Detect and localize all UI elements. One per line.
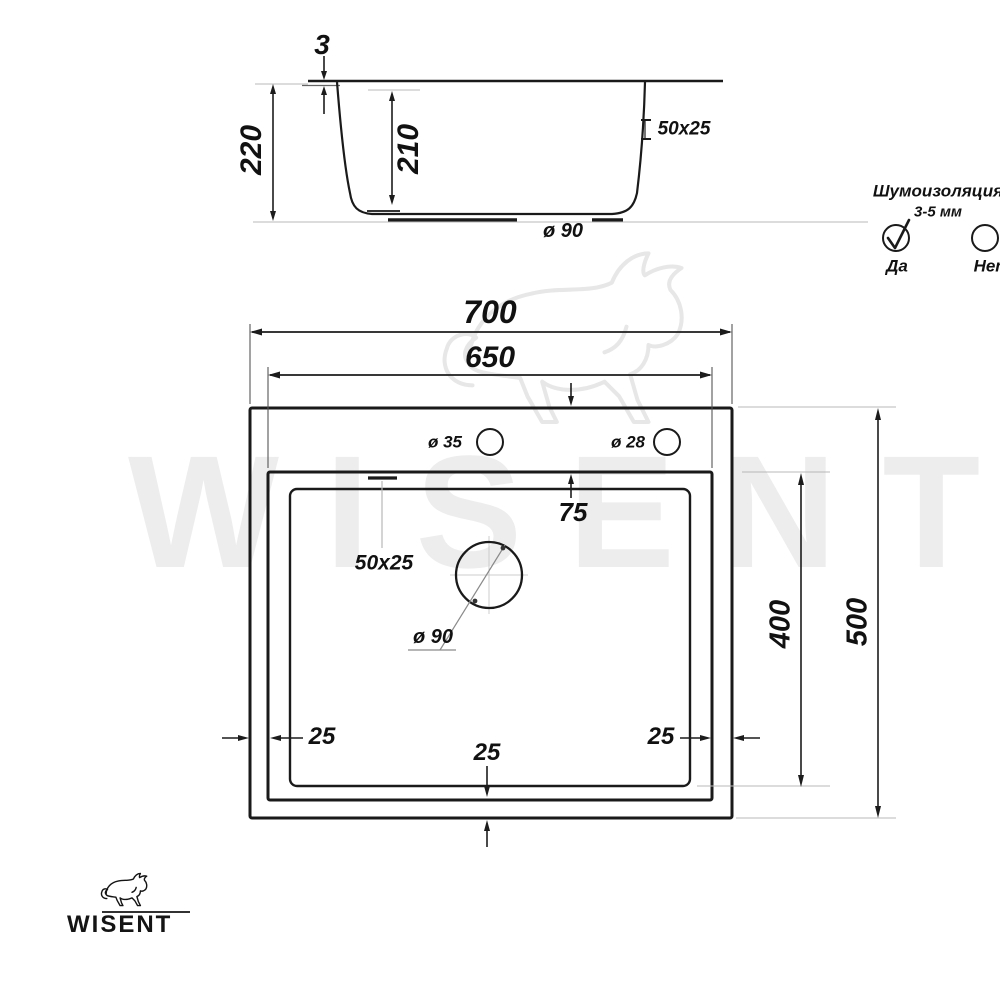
hole-label-28: ø 28 [611,434,645,451]
overflow-label-top: 50x25 [355,553,413,574]
dim-label-650: 650 [465,343,515,373]
dim-label-overflow-side: 50x25 [658,120,711,139]
dim-label-220: 220 [237,125,267,175]
dim-label-75: 75 [559,499,588,525]
noise-insulation-subtitle: 3-5 мм [914,205,962,220]
noise-insulation-title: Шумоизоляция [873,183,1000,200]
dim-label-3: 3 [314,31,330,59]
faucet-hole-28 [654,429,680,455]
dim-label-210: 210 [394,124,424,174]
sink-technical-drawing-page: WISENT [0,0,1000,1000]
noise-insulation-options [883,220,998,251]
dim-label-25-left: 25 [309,725,336,749]
logo-bison-icon [96,872,168,914]
dim-label-400: 400 [767,600,796,648]
dim-650 [268,367,712,468]
drawing-linework [0,0,1000,1000]
dim-label-500: 500 [844,598,873,646]
checkmark-icon [888,220,909,248]
dim-label-25-right: 25 [648,725,675,749]
no-label: Нет [974,258,1000,275]
no-option-circle [972,225,998,251]
side-view-extension-lines [253,84,868,222]
dim-label-25-bottom: 25 [474,741,501,765]
drain-label-top: ø 90 [413,627,453,647]
dim-label-700: 700 [463,296,516,328]
dim-label-drain-side: ø 90 [543,221,583,241]
logo-text: WISENT [67,913,172,937]
yes-label: Да [886,258,908,275]
side-view-profile [302,81,723,220]
hole-label-35: ø 35 [428,434,462,451]
faucet-hole-35 [477,429,503,455]
dim-400 [697,472,830,787]
